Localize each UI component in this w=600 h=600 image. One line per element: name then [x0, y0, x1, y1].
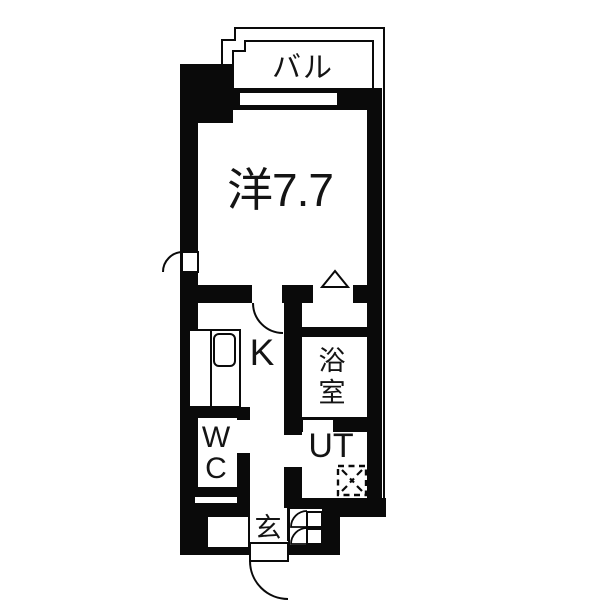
kitchen-door-opening [252, 285, 282, 303]
shoe-cabinet-box [307, 512, 322, 527]
utility-label: UT [308, 427, 353, 465]
washer-pan-icon [338, 466, 366, 495]
toilet-label-char1: W [202, 421, 231, 454]
toilet-door-opening [237, 420, 250, 453]
utility-door-opening [284, 435, 302, 467]
service-door-leaf [182, 252, 198, 272]
entrance-floor-lower [208, 517, 248, 547]
kitchen-counter [189, 330, 240, 407]
hallway-floor [250, 407, 284, 508]
balcony-label: バル [272, 52, 334, 84]
toilet-label-char2: C [205, 452, 227, 485]
front-door-leaf [250, 543, 288, 561]
sink-icon [214, 334, 235, 366]
floorplan-canvas: バル 洋7.7 K 浴 室 W C UT 玄 [0, 0, 600, 600]
entrance-label: 玄 [255, 513, 282, 543]
shoe-cabinet-box [307, 529, 322, 544]
western-room-label: 洋7.7 [227, 164, 333, 216]
wall-segment [302, 327, 367, 337]
wall-segment [284, 303, 302, 517]
bathroom-label-char2: 室 [319, 378, 346, 408]
toilet-wall-slit [195, 497, 237, 503]
balcony-window-opening [240, 93, 337, 105]
wall-segment [180, 123, 198, 487]
floorplan-drawing: バル 洋7.7 K 浴 室 W C UT 玄 [0, 0, 600, 600]
vestibule-floor [303, 303, 367, 327]
kitchen-label: K [250, 332, 275, 373]
bathroom-label-char1: 浴 [319, 346, 346, 376]
wall-segment [180, 64, 233, 123]
